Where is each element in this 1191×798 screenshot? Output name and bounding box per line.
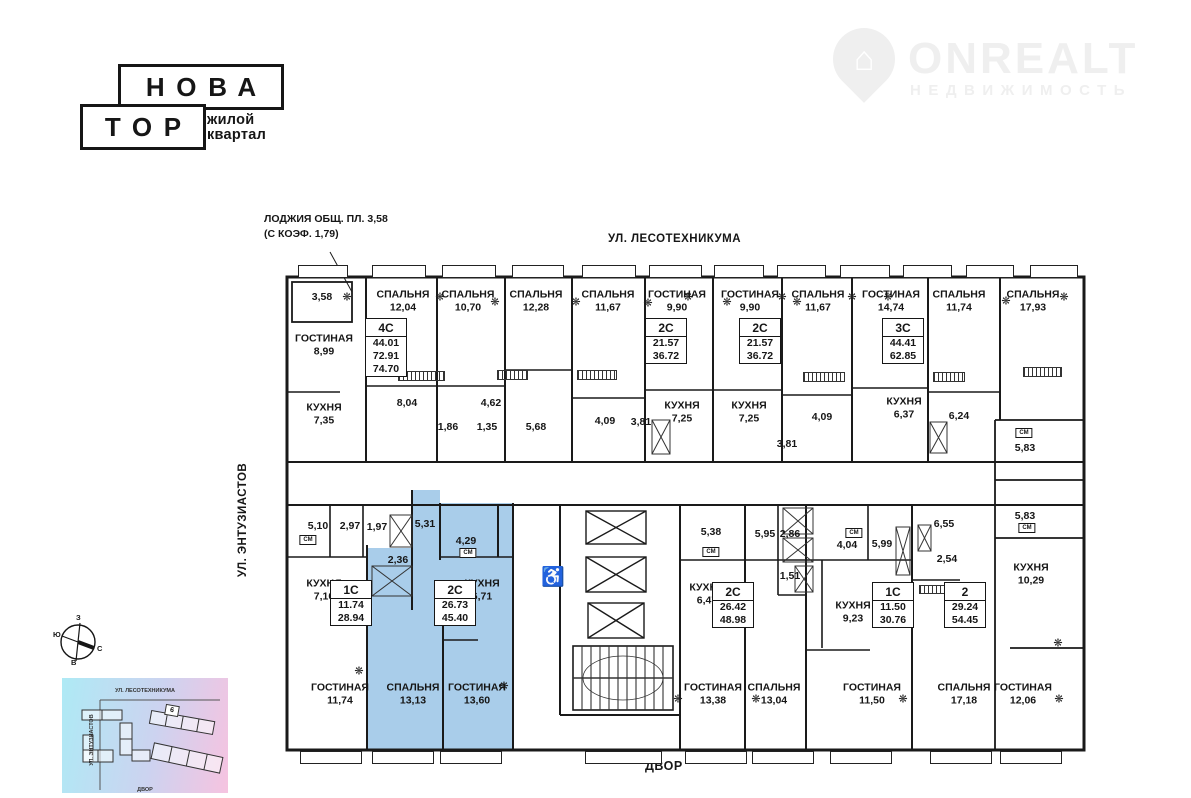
balcony [714,265,764,278]
area-label: 6,55 [934,518,954,530]
sm-badge: СМ [702,547,719,557]
room-label: СПАЛЬНЯ13,04 [748,682,801,707]
balcony [1000,751,1062,764]
area-label: 4,09 [812,411,832,423]
logo-line1: НОВА [134,72,268,103]
room-label: КУХНЯ10,29 [1013,562,1048,587]
balcony [298,265,348,278]
balcony [582,265,636,278]
balcony [777,265,826,278]
stairs [573,646,673,710]
area-label: 3,58 [312,291,332,303]
plant-icon: ❋ [571,296,580,309]
balcony [442,265,496,278]
minimap-building-badge: 6 [164,704,180,717]
plant-icon: ❋ [354,665,363,678]
balcony [512,265,564,278]
balcony [440,751,502,764]
area-label: 5,68 [526,421,546,433]
room-label: ГОСТИНАЯ11,74 [311,682,369,707]
plant-icon: ❋ [1053,637,1062,650]
minimap-buildings [62,678,228,793]
entrance-porch [585,751,662,764]
unit-badge: 2С26.4248.98 [712,582,754,628]
unit-badge: 1С11.5030.76 [872,582,914,628]
balcony [752,751,814,764]
room-label: КУХНЯ7,35 [306,402,341,427]
area-label: 2,36 [388,554,408,566]
minimap-street-top: УЛ. ЛЕСОТЕХНИКУМА [115,688,175,694]
area-label: 6,24 [949,410,969,422]
room-label: СПАЛЬНЯ17,93 [1007,289,1060,314]
area-label: 5,99 [872,538,892,550]
radiator [933,372,965,382]
room-label: СПАЛЬНЯ10,70 [442,289,495,314]
plant-icon: ❋ [342,291,351,304]
unit-badge: 2С21.5736.72 [739,318,781,364]
area-label: 2,97 [340,520,360,532]
room-label: СПАЛЬНЯ17,18 [938,682,991,707]
room-label: ГОСТИНАЯ14,74 [862,289,920,314]
area-label: 1,35 [477,421,497,433]
logo-line2: ТОР [93,112,193,143]
radiator [1023,367,1062,377]
unit-badge: 229.2454.45 [944,582,986,628]
area-label: 1,97 [367,521,387,533]
unit-badge: 1С11.7428.94 [330,580,372,626]
unit-badge: 2С21.5736.72 [645,318,687,364]
balcony [300,751,362,764]
area-label: 1,86 [438,421,458,433]
balcony [372,265,426,278]
balcony [649,265,702,278]
area-label: 5,10 [308,520,328,532]
compass [52,612,108,672]
room-label: ГОСТИНАЯ12,06 [994,682,1052,707]
room-label: ГОСТИНАЯ13,60 [448,682,506,707]
room-label: КУХНЯ6,37 [886,396,921,421]
area-label: 5,95 [755,528,775,540]
room-label: СПАЛЬНЯ11,67 [792,289,845,314]
unit-badge: 3С44.4162.85 [882,318,924,364]
unit-badge-selected[interactable]: 2С26.7345.40 [434,580,476,626]
room-label: ГОСТИНАЯ13,38 [684,682,742,707]
logo-tor-box: ТОР [80,104,206,150]
room-label: СПАЛЬНЯ12,28 [510,289,563,314]
area-label: 5,83 [1015,442,1035,454]
room-label: СПАЛЬНЯ12,04 [377,289,430,314]
room-label: КУХНЯ7,25 [731,400,766,425]
elevator-shaft [586,511,646,638]
radiator [577,370,617,380]
minimap-street-left: УЛ. ЭНТУЗИАСТОВ [89,714,95,765]
site-minimap[interactable]: УЛ. ЛЕСОТЕХНИКУМА УЛ. ЭНТУЗИАСТОВ ДВОР 6 [62,678,228,793]
unit-badge: 4С44.0172.9174.70 [365,318,407,377]
area-label: 2,54 [937,553,957,565]
area-label: 5,31 [415,518,435,530]
room-label: КУХНЯ7,25 [664,400,699,425]
balcony [685,751,747,764]
area-label: 4,09 [595,415,615,427]
area-label: 1,51 [780,570,800,582]
sm-badge: СМ [299,535,316,545]
sm-badge: СМ [1018,523,1035,533]
area-label: 3,81 [777,438,797,450]
radiator [497,370,528,380]
balcony [840,265,890,278]
room-label: КУХНЯ9,23 [835,600,870,625]
plant-icon: ❋ [847,291,856,304]
area-label: 2,86 [780,528,800,540]
sm-badge: СМ [1015,428,1032,438]
plant-icon: ❋ [1054,693,1063,706]
balcony [966,265,1014,278]
minimap-street-bottom: ДВОР [137,787,153,793]
balcony [830,751,892,764]
area-label: 4,04 [837,539,857,551]
balcony [903,265,952,278]
room-label: ГОСТИНАЯ9,90 [648,289,706,314]
plant-icon: ❋ [673,693,682,706]
radiator [803,372,845,382]
room-label: ГОСТИНАЯ8,99 [295,333,353,358]
room-label: СПАЛЬНЯ11,67 [582,289,635,314]
sm-badge: СМ [459,548,476,558]
balcony [1030,265,1078,278]
room-label: ГОСТИНАЯ11,50 [843,682,901,707]
area-label: 3,81 [631,416,651,428]
area-label: 5,83 [1015,510,1035,522]
wheelchair-icon: ♿ [541,565,565,589]
sm-badge: СМ [845,528,862,538]
room-label: СПАЛЬНЯ13,13 [387,682,440,707]
balcony [372,751,434,764]
area-label: 8,04 [397,397,417,409]
balcony [930,751,992,764]
area-label: 4,62 [481,397,501,409]
room-label: ГОСТИНАЯ9,90 [721,289,779,314]
room-label: СПАЛЬНЯ11,74 [933,289,986,314]
area-label: 4,29 [456,535,476,547]
plant-icon: ❋ [1059,291,1068,304]
area-label: 5,38 [701,526,721,538]
